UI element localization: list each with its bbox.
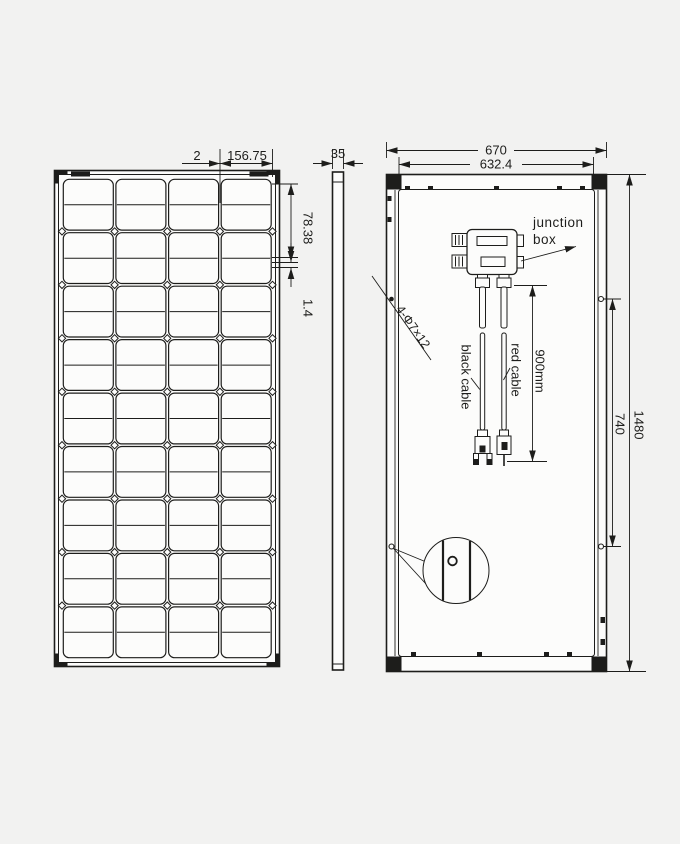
dim-height-label: 1480 xyxy=(632,411,647,440)
back-inner-width-dimension: 632.4 xyxy=(399,157,594,177)
junction-box-label-line2: box xyxy=(533,232,556,247)
front-view: 2 156.75 78.38 1.4 xyxy=(55,148,316,667)
dim-hole-spacing-label: 740 xyxy=(613,413,628,435)
side-thickness-dimension: 35 xyxy=(313,146,363,169)
dim-thickness-label: 35 xyxy=(331,146,345,161)
junction-box-tab-right xyxy=(517,257,524,269)
red-cable-lower xyxy=(502,333,506,430)
back-corner-block xyxy=(387,657,402,672)
black-cable-lower xyxy=(480,333,484,430)
dim-cell-gap-side-label: 1.4 xyxy=(301,299,316,317)
solar-panel-technical-drawing: 2 156.75 78.38 1.4 35 xyxy=(0,0,680,844)
cable-gland xyxy=(499,275,509,279)
back-view: junction box xyxy=(372,142,647,672)
front-top-tab-left xyxy=(71,172,90,177)
mounting-hole xyxy=(389,297,394,302)
back-corner-block xyxy=(387,175,402,190)
cable-gland xyxy=(497,278,511,288)
red-cable-upper xyxy=(501,287,507,328)
black-cable-label: black cable xyxy=(459,344,474,409)
dim-cell-height-label: 78.38 xyxy=(301,212,316,245)
back-corner-block xyxy=(592,175,607,190)
dim-cell-gap-label: 2 xyxy=(193,148,200,163)
front-top-tab-right xyxy=(250,172,269,177)
black-cable-upper xyxy=(480,287,486,328)
hole-spacing-dimension: 740 xyxy=(604,299,628,547)
back-corner-block xyxy=(592,657,607,672)
cable-gland xyxy=(478,275,488,279)
dim-inner-width-label: 632.4 xyxy=(480,157,513,172)
red-cable-label: red cable xyxy=(509,343,524,396)
cable-gland xyxy=(476,278,490,288)
junction-box-label-line1: junction xyxy=(532,215,584,230)
dim-outer-width-label: 670 xyxy=(485,143,507,158)
side-profile xyxy=(333,172,344,670)
dim-cable-length-label: 900mm xyxy=(533,349,548,392)
dim-cell-width-label: 156.75 xyxy=(227,148,267,163)
junction-box-tab-right xyxy=(517,235,524,247)
side-view: 35 xyxy=(313,146,363,670)
detail-circle xyxy=(423,538,489,604)
